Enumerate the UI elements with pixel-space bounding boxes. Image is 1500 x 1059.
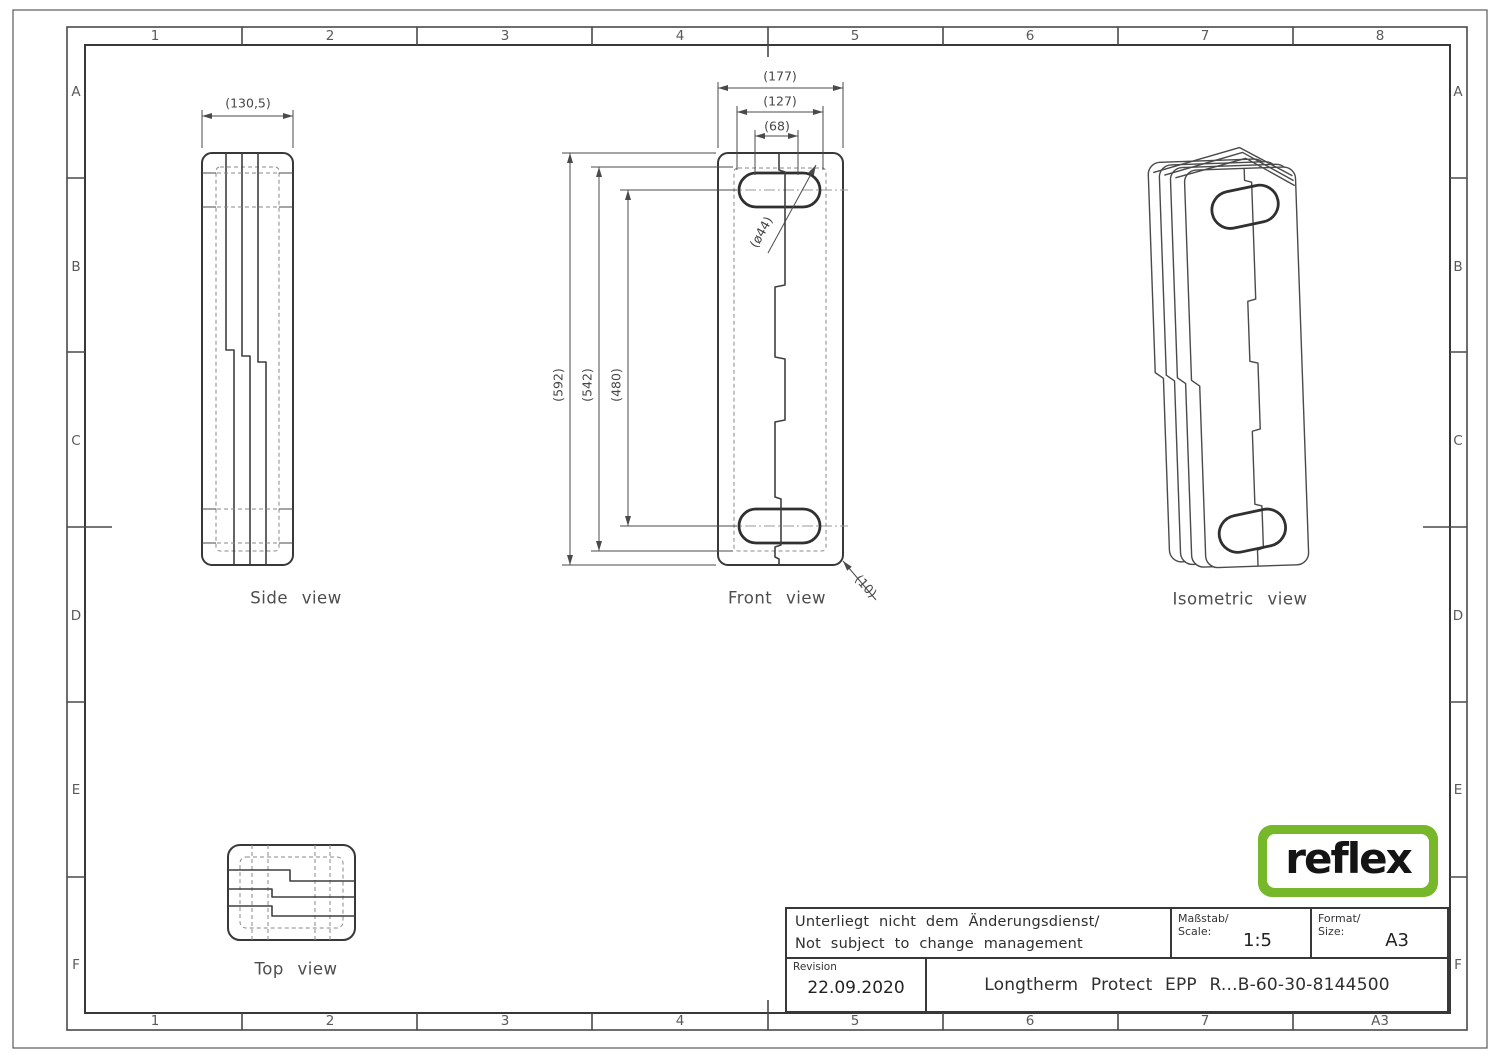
frame-col-top-1: 1 [151,28,160,44]
change-note-cell: Unterliegt nicht dem Änderungsdienst/ No… [787,909,1172,959]
frame-row-left-b: B [71,259,80,275]
dim-front-inner-width: (68) [764,119,790,134]
frame-col-bottom-8: A3 [1371,1013,1389,1029]
scale-label-de: Maßstab/ [1178,912,1229,925]
scale-label-en: Scale: [1178,925,1229,938]
frame-col-top-3: 3 [501,28,510,44]
revision-label: Revision [793,961,837,973]
reflex-logo: reflex [1258,825,1438,897]
frame-row-left-e: E [72,782,81,798]
dim-front-mid-height: (542) [580,368,595,402]
frame-col-top-5: 5 [851,28,860,44]
frame-row-right-a: A [1453,84,1462,100]
frame-col-bottom-4: 4 [676,1013,685,1029]
isometric-view-drawing [1147,146,1309,570]
frame-col-bottom-2: 2 [326,1013,335,1029]
scale-value: 1:5 [1243,930,1272,951]
format-label-en: Size: [1318,925,1360,938]
top-view-label: Top view [254,960,337,979]
frame-row-right-f: F [1454,957,1462,973]
frame-row-left-c: C [71,433,80,449]
dim-side-width: (130,5) [225,96,271,111]
front-view-drawing [562,82,876,600]
dim-front-inner-height: (480) [609,368,624,402]
dim-front-mid-width: (127) [763,94,797,109]
reflex-logo-inner: reflex [1267,834,1429,888]
dim-front-outer-height: (592) [551,368,566,402]
side-view-drawing [202,110,293,565]
frame-col-top-6: 6 [1026,28,1035,44]
format-label-de: Format/ [1318,912,1360,925]
revision-cell: Revision 22.09.2020 [787,959,927,1011]
frame-row-left-a: A [71,84,80,100]
drawing-sheet: 1 2 3 4 5 6 7 8 1 2 3 4 5 6 7 A3 A B C D… [0,0,1500,1059]
revision-date: 22.09.2020 [787,978,925,998]
drawing-linework [0,0,1500,1059]
part-title-cell: Longtherm Protect EPP R...B-60-30-814450… [927,959,1447,1011]
frame-col-top-2: 2 [326,28,335,44]
title-block: Unterliegt nicht dem Änderungsdienst/ No… [785,907,1449,1013]
frame-col-top-7: 7 [1201,28,1210,44]
frame-col-bottom-3: 3 [501,1013,510,1029]
frame-row-left-f: F [72,957,80,973]
frame-col-bottom-7: 7 [1201,1013,1210,1029]
format-value: A3 [1385,930,1409,951]
change-note-line2: Not subject to change management [795,933,1162,955]
frame-row-right-e: E [1454,782,1463,798]
change-note-line1: Unterliegt nicht dem Änderungsdienst/ [795,911,1162,933]
isometric-view-label: Isometric view [1173,590,1308,609]
front-view-label: Front view [728,589,826,608]
dim-front-outer-width: (177) [763,69,797,84]
frame-col-top-8: 8 [1376,28,1385,44]
part-title: Longtherm Protect EPP R...B-60-30-814450… [984,975,1390,995]
frame-col-bottom-6: 6 [1026,1013,1035,1029]
frame-col-top-4: 4 [676,28,685,44]
frame-row-left-d: D [71,608,81,624]
format-cell: Format/ Size: A3 [1312,909,1447,959]
frame-row-right-c: C [1453,433,1462,449]
top-view-drawing [228,845,355,940]
frame-col-bottom-1: 1 [151,1013,160,1029]
reflex-logo-text: reflex [1285,838,1410,884]
scale-cell: Maßstab/ Scale: 1:5 [1172,909,1312,959]
frame-row-right-b: B [1453,259,1462,275]
frame-col-bottom-5: 5 [851,1013,860,1029]
side-view-label: Side view [250,589,341,608]
frame-row-right-d: D [1453,608,1463,624]
